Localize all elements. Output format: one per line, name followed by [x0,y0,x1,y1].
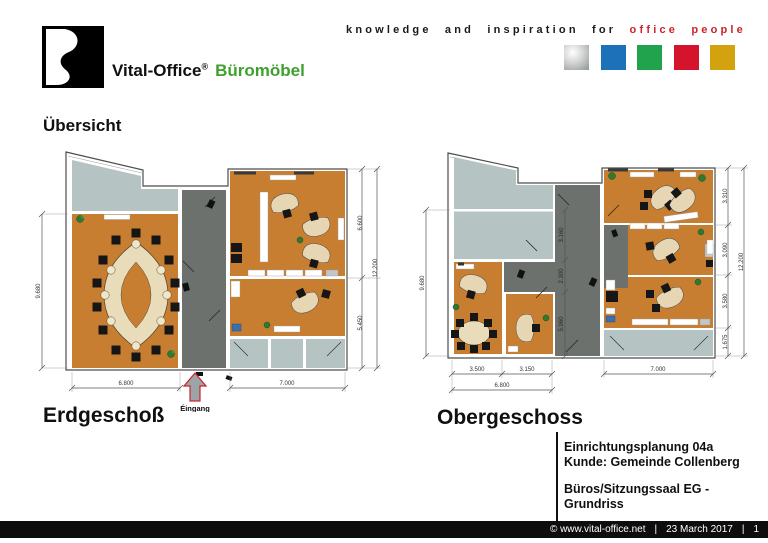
og-dim-right-total: 12.200 [739,252,745,271]
footer-page-number: 1 [753,524,759,535]
eg-dim-right-total: 12.200 [373,258,379,277]
og-dim-mid-3: 5.960 [559,316,565,332]
brand-name: Vital-Office [112,61,201,80]
eg-dim-bottom-right: 7.000 [279,381,295,387]
og-dim-left: 9.680 [420,275,426,291]
og-dim-bottom-total: 6.800 [494,383,510,389]
color-squares [564,45,735,70]
og-dim-right-4: 1.675 [723,334,729,350]
brand-suffix: Büromöbel [215,61,305,80]
info-drawing-title: Büros/Sitzungssaal EG - Grundriss [564,482,768,512]
footer-copyright: © www.vital-office.net [550,524,646,535]
tagline-red: office people [630,24,746,36]
info-divider [556,432,558,521]
brand-reg: ® [201,61,208,71]
og-dim-mid-1: 3.160 [559,227,565,243]
gold-square [710,45,735,70]
og-dim-bottom-right: 7.000 [650,367,666,373]
tagline-black: knowledge and inspiration for [346,24,616,36]
footer-separator: | [655,524,658,535]
brand-text: Vital-Office®Büromöbel [112,61,305,81]
info-plan-number: Einrichtungsplanung 04a [564,440,768,455]
green-square [637,45,662,70]
logo-icon [42,26,104,88]
footer-date: 23 March 2017 [666,524,733,535]
entrance-label: Éingang [180,404,210,412]
og-dim-right-3: 3.580 [723,293,729,309]
silver-square [564,45,589,70]
tagline: knowledge and inspiration for office peo… [346,24,746,36]
footer-separator: | [742,524,745,535]
og-dim-right-2: 3.090 [723,242,729,258]
info-block: Einrichtungsplanung 04a Kunde: Gemeinde … [564,440,768,512]
og-dim-mid-2: 2.300 [559,268,565,284]
obergeschoss-floor-plan: 9.680 3.160 2.300 5.960 3.310 3.090 3.58… [418,140,768,412]
blue-square [601,45,626,70]
vital-office-logo [42,26,104,88]
erdgeschoss-floor-plan: 9.680 6.600 5.450 12.200 6.800 7.000 Éin… [34,140,386,412]
og-dim-right-1: 3.310 [723,188,729,204]
footer-bar: © www.vital-office.net | 23 March 2017 |… [0,521,768,538]
page-title: Übersicht [43,116,121,136]
info-customer: Kunde: Gemeinde Collenberg [564,455,768,470]
eg-dim-right-bottom: 5.450 [358,315,364,331]
eg-dim-bottom-left: 6.800 [118,381,134,387]
eg-dim-right-top: 6.600 [358,215,364,231]
red-square [674,45,699,70]
og-dim-bottom-1: 3.500 [469,367,485,373]
og-dim-bottom-2: 3.150 [519,367,535,373]
eg-dim-left: 9.680 [36,283,42,299]
entrance-arrow-icon [184,373,206,401]
